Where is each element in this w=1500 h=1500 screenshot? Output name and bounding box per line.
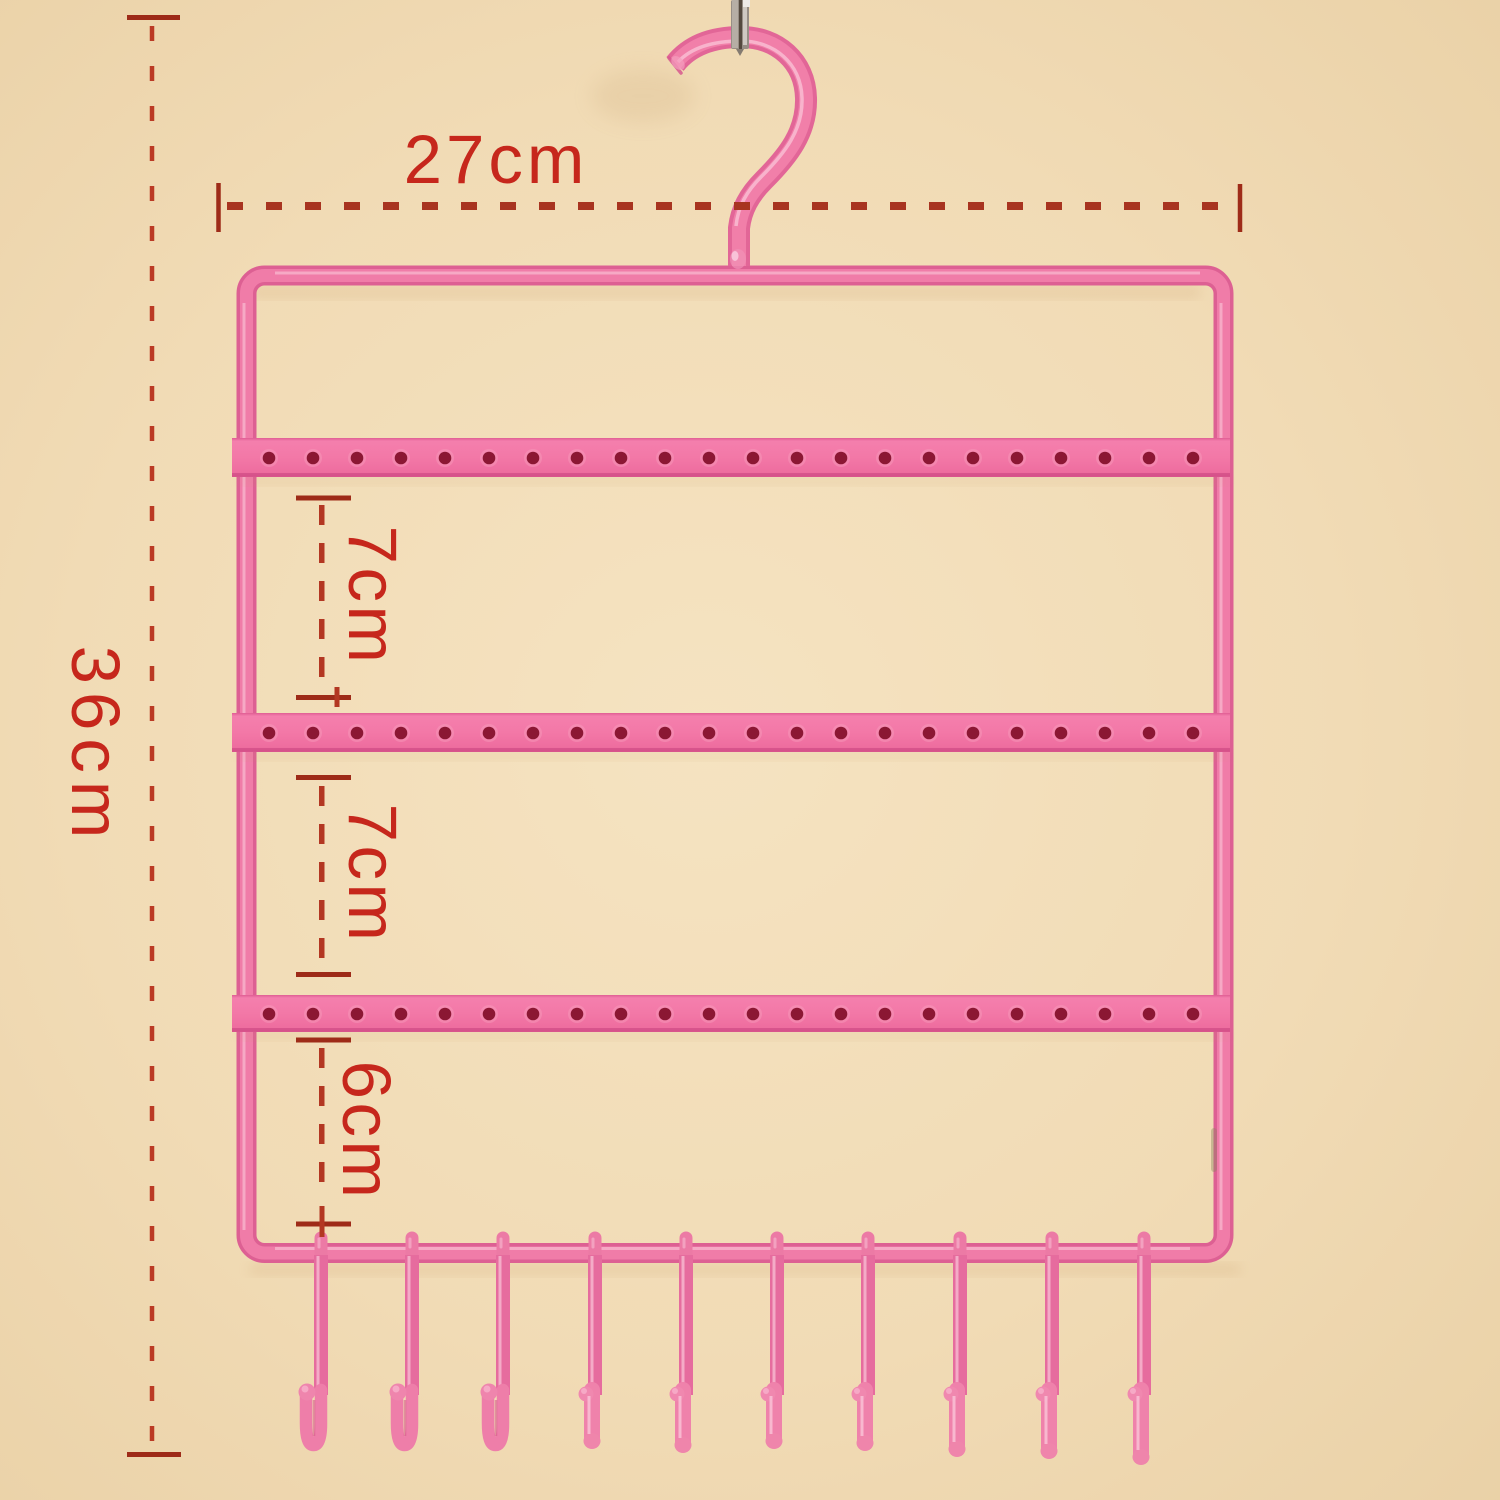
svg-text:27cm: 27cm <box>404 121 589 198</box>
svg-text:7cm: 7cm <box>334 804 411 945</box>
svg-text:36cm: 36cm <box>57 646 134 847</box>
svg-text:6cm: 6cm <box>328 1061 405 1202</box>
svg-text:7cm: 7cm <box>334 526 411 667</box>
